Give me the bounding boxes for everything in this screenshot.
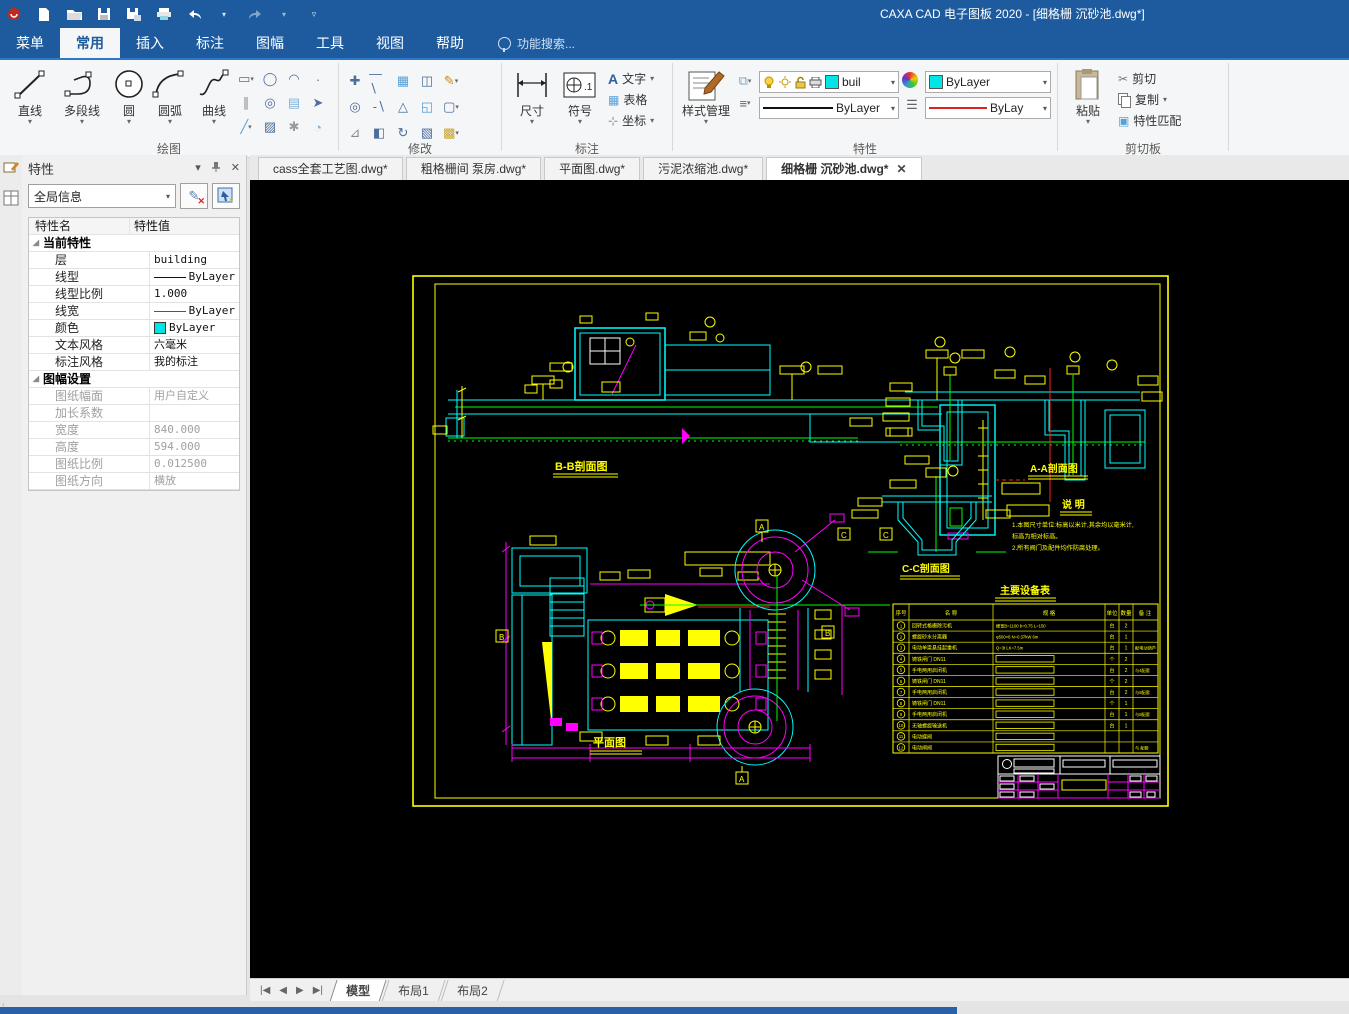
- linetype-combo[interactable]: ByLayer ▾: [759, 97, 899, 119]
- prop-row-图纸方向[interactable]: 图纸方向横放: [29, 473, 239, 490]
- prop-row-线型[interactable]: 线型ByLayer: [29, 269, 239, 286]
- hatch-line-icon[interactable]: ╱▾: [236, 116, 256, 138]
- sheet-palette-icon[interactable]: [3, 190, 19, 211]
- save-icon[interactable]: [96, 6, 112, 22]
- prop-row-标注风格[interactable]: 标注风格我的标注: [29, 354, 239, 371]
- svg-text:5: 5: [900, 668, 903, 673]
- symbol-icon: .1: [563, 66, 597, 104]
- app-logo-icon[interactable]: [6, 6, 22, 22]
- svg-text:B: B: [499, 633, 504, 642]
- current-color-swatch: [929, 75, 943, 89]
- layer-combo[interactable]: buil ▾: [759, 71, 899, 93]
- doc-tab-label: 污泥浓缩池.dwg*: [658, 158, 748, 180]
- panel-close-icon[interactable]: ✕: [231, 161, 240, 176]
- group-props: 样式管理▾ ⧉▾ ≡▾ buil ▾ ByLayer ▾ ☰: [673, 60, 1057, 159]
- equipment-table: 序号名 称规 格单位数量备 注1回转式格栅除污机栅宽B=1100 b=0.75 …: [893, 604, 1158, 753]
- svg-text:1: 1: [1125, 723, 1128, 729]
- title-block: [998, 756, 1160, 798]
- printer-icon: [809, 77, 822, 88]
- group-modify: ✚ ◎ ⊿ —∖ -∖ ◧ ▦ △ ↻ ◫ ◱ ▧ ✎▾ ▢▾ ▩▾ 修改: [339, 60, 501, 159]
- pie-icon[interactable]: ◔: [308, 116, 328, 138]
- svg-text:手电两用启闭机: 手电两用启闭机: [912, 667, 947, 674]
- svg-text:φ500×8 N=0.37kW 6m: φ500×8 N=0.37kW 6m: [996, 635, 1039, 640]
- svg-text:1: 1: [1125, 646, 1128, 652]
- svg-text:手电两用启闭机: 手电两用启闭机: [912, 689, 947, 696]
- svg-text:电动闸阀: 电动闸阀: [912, 744, 932, 751]
- quick-access-toolbar: ▾ ▾ ▿: [0, 6, 322, 22]
- svg-text:台: 台: [1109, 711, 1114, 718]
- tangent-arc-icon[interactable]: ◠: [284, 68, 304, 90]
- match-properties-button[interactable]: ▣特性匹配: [1118, 110, 1181, 131]
- svg-text:B: B: [825, 629, 830, 638]
- svg-text:台: 台: [1109, 645, 1114, 652]
- print-icon[interactable]: [156, 6, 172, 22]
- tab-model[interactable]: 模型: [329, 980, 386, 1002]
- doc-tab-0[interactable]: cass全套工艺图.dwg*: [258, 157, 403, 180]
- svg-text:.1: .1: [584, 82, 593, 93]
- save-all-icon[interactable]: [126, 6, 142, 22]
- point-icon[interactable]: ·: [308, 68, 328, 90]
- undo-icon[interactable]: [186, 6, 202, 22]
- svg-text:铸铁闸门 DN11: 铸铁闸门 DN11: [912, 678, 946, 685]
- doc-tab-1[interactable]: 粗格栅间 泵房.dwg*: [406, 157, 541, 180]
- doc-tab-3[interactable]: 污泥浓缩池.dwg*: [643, 157, 763, 180]
- last-layout-icon[interactable]: ▶|: [313, 985, 323, 996]
- menu-tab-2[interactable]: 插入: [120, 28, 180, 58]
- redo-caret-icon[interactable]: ▾: [276, 6, 292, 22]
- prop-row-颜色[interactable]: 颜色ByLayer: [29, 320, 239, 337]
- copy-button[interactable]: 复制▾: [1118, 89, 1181, 110]
- draw-small-icons: ▭▾ ∥ ╱▾ ◯ ◎ ▨ ◠ ▤ ✱ · ➤ ◔: [236, 68, 328, 140]
- bulb-icon: [763, 76, 776, 89]
- mirror-icon[interactable]: △: [393, 96, 413, 118]
- svg-text:2: 2: [1125, 690, 1128, 696]
- parallel-lines-icon[interactable]: ∥: [236, 92, 256, 114]
- document-tab-bar: cass全套工艺图.dwg*粗格栅间 泵房.dwg*平面图.dwg*污泥浓缩池.…: [250, 155, 1349, 181]
- linewidth-name: ByLay: [990, 101, 1023, 115]
- note-line-2: 2.所有阀门及配件均作防腐处理。: [1012, 544, 1104, 552]
- linewidth-combo[interactable]: ByLay ▾: [925, 97, 1051, 119]
- svg-text:台: 台: [1109, 722, 1114, 729]
- svg-text:栅宽B=1100 b=0.75 L=150: 栅宽B=1100 b=0.75 L=150: [996, 623, 1046, 630]
- modify-icons: ✚ ◎ ⊿ —∖ -∖ ◧ ▦ △ ↻ ◫ ◱ ▧ ✎▾ ▢▾ ▩▾: [345, 70, 461, 148]
- extend-icon[interactable]: -∖: [369, 96, 389, 118]
- svg-text:台: 台: [1109, 634, 1114, 641]
- prop-row-层[interactable]: 层building: [29, 252, 239, 269]
- svg-text:铸铁闸门 DN11: 铸铁闸门 DN11: [912, 656, 946, 663]
- svg-text:1: 1: [1125, 635, 1128, 641]
- tab-layout1[interactable]: 布局1: [381, 980, 445, 1002]
- svg-text:电动单梁悬挂起重机: 电动单梁悬挂起重机: [912, 645, 957, 652]
- svg-text:电动蝶阀: 电动蝶阀: [912, 733, 932, 740]
- cad-drawing: B-B剖面图: [250, 180, 1349, 978]
- style-manager-icon: [687, 66, 725, 104]
- group-annotate: 尺寸▾ .1 符号▾ A文字▾ ▦表格 ⊹坐标▾ 标注: [502, 60, 672, 159]
- svg-text:数量: 数量: [1120, 609, 1132, 617]
- panel-pin-icon[interactable]: [211, 161, 221, 176]
- svg-text:12: 12: [899, 745, 904, 750]
- edit-cancel-button[interactable]: ✎✕: [180, 183, 208, 209]
- color-wheel-icon[interactable]: [902, 72, 918, 88]
- linewidth-sample: [929, 107, 987, 109]
- section-aa: [883, 347, 1162, 502]
- sheet-inner-frame: [435, 284, 1160, 798]
- lock-icon: [795, 76, 806, 89]
- svg-text:与4配套: 与4配套: [1135, 667, 1151, 674]
- svg-text:A: A: [739, 775, 745, 784]
- search-icon: [498, 37, 511, 50]
- edit-pencil-icon[interactable]: ✎▾: [441, 70, 461, 92]
- section-cc: [852, 456, 1010, 555]
- svg-text:手电两用启闭机: 手电两用启闭机: [912, 711, 947, 718]
- doc-tab-close-icon[interactable]: ✕: [896, 158, 906, 180]
- menu-tab-7[interactable]: 帮助: [420, 28, 480, 58]
- label-aa: A-A剖面图: [1030, 462, 1078, 475]
- linewidth-tool-icon[interactable]: ☰: [902, 94, 922, 116]
- svg-text:7: 7: [900, 690, 903, 695]
- sun-icon: [779, 76, 792, 89]
- window-title: CAXA CAD 电子图板 2020 - [细格栅 沉砂池.dwg*]: [880, 0, 1145, 28]
- arc-icon: [152, 66, 188, 104]
- prop-row-线宽[interactable]: 线宽ByLayer: [29, 303, 239, 320]
- ribbon-tab-row: 菜单常用插入标注图幅工具视图帮助 功能搜索...: [0, 28, 1349, 58]
- label-plan: 平面图: [593, 736, 626, 749]
- circle-box-icon[interactable]: ◎: [260, 92, 280, 114]
- linetype-sample: [763, 107, 833, 109]
- equipment-table-title: 主要设备表: [1000, 584, 1051, 597]
- cut-button[interactable]: ✂剪切: [1118, 68, 1181, 89]
- svg-text:单位: 单位: [1106, 609, 1118, 617]
- svg-text:个: 个: [1109, 679, 1114, 685]
- flange-icon[interactable]: ▤: [284, 92, 304, 114]
- tab-layout2[interactable]: 布局2: [440, 980, 504, 1002]
- prop-row-宽度[interactable]: 宽度840.000: [29, 422, 239, 439]
- layer-name: buil: [842, 75, 861, 89]
- frame-icon[interactable]: ▢▾: [441, 96, 461, 118]
- svg-text:规 格: 规 格: [1043, 609, 1056, 617]
- arc-button[interactable]: 圆弧▾: [148, 64, 192, 126]
- svg-text:4: 4: [900, 657, 903, 662]
- prop-row-加长系数[interactable]: 加长系数: [29, 405, 239, 422]
- svg-text:1: 1: [1125, 701, 1128, 707]
- bottom-accent-bar: [0, 1007, 957, 1014]
- svg-text:配电动葫芦: 配电动葫芦: [1135, 645, 1156, 652]
- array-icon[interactable]: ▦: [393, 70, 413, 92]
- svg-text:2: 2: [1125, 679, 1128, 685]
- circle-button[interactable]: 圆▾: [110, 64, 148, 126]
- prop-group-1[interactable]: ◢图幅设置: [29, 371, 239, 388]
- ribbon: 直线▾ 多段线▾ 圆▾ 圆弧▾ 曲线▾ ▭▾ ∥ ╱▾ ◯ ◎ ▨ ◠ ▤ ✱: [0, 58, 1349, 158]
- properties-panel-title: 特性: [28, 159, 54, 178]
- doc-tab-label: 细格栅 沉砂池.dwg*: [781, 158, 888, 180]
- spline-button[interactable]: 曲线▾: [192, 64, 236, 126]
- global-info-select[interactable]: 全局信息▾: [28, 184, 176, 208]
- svg-text:8: 8: [900, 701, 903, 706]
- section-bb: [433, 313, 1049, 539]
- prop-row-图纸比例[interactable]: 图纸比例0.012500: [29, 456, 239, 473]
- new-file-icon[interactable]: [36, 6, 52, 22]
- svg-text:A: A: [759, 523, 765, 532]
- fill-icon[interactable]: ◱: [417, 96, 437, 118]
- svg-text:6: 6: [900, 679, 903, 684]
- svg-text:3: 3: [900, 646, 903, 651]
- svg-text:9: 9: [900, 712, 903, 717]
- svg-text:个: 个: [1109, 657, 1114, 663]
- label-cc: C-C剖面图: [902, 562, 950, 575]
- properties-table-header: 特性名 特性值: [29, 218, 239, 235]
- doc-tab-label: cass全套工艺图.dwg*: [273, 158, 388, 180]
- svg-text:回转式格栅除污机: 回转式格栅除污机: [912, 623, 952, 630]
- offset-icon[interactable]: ◎: [345, 96, 365, 118]
- svg-text:1: 1: [1125, 712, 1128, 718]
- dimension-button[interactable]: 尺寸▾: [508, 64, 556, 126]
- move-icon[interactable]: ✚: [345, 70, 365, 92]
- menu-tab-0[interactable]: 菜单: [0, 28, 60, 58]
- svg-text:Q=3t LK=7.5m: Q=3t LK=7.5m: [996, 646, 1024, 651]
- properties-table: 特性名 特性值 ◢当前特性层building线型ByLayer线型比例1.000…: [28, 217, 240, 491]
- arrow-icon[interactable]: ➤: [308, 92, 328, 114]
- menu-tab-4[interactable]: 图幅: [240, 28, 300, 58]
- linetype-tool-icon[interactable]: ≡▾: [735, 92, 755, 114]
- svg-text:C: C: [841, 531, 847, 540]
- doc-tab-4[interactable]: 细格栅 沉砂池.dwg*✕: [766, 157, 921, 180]
- panel-dropdown-icon[interactable]: ▾: [195, 161, 201, 176]
- label-bb: B-B剖面图: [555, 459, 608, 473]
- color-swatch: [154, 322, 166, 334]
- svg-text:台: 台: [1109, 667, 1114, 674]
- text-button[interactable]: A文字▾: [608, 68, 654, 89]
- svg-text:名 称: 名 称: [945, 609, 958, 617]
- svg-text:1: 1: [900, 623, 903, 628]
- rectangle-icon[interactable]: ▭▾: [236, 68, 256, 90]
- svg-text:台: 台: [1109, 623, 1114, 630]
- prop-row-文本风格[interactable]: 文本风格六毫米: [29, 337, 239, 354]
- prop-group-0[interactable]: ◢当前特性: [29, 235, 239, 252]
- svg-text:与6配套: 与6配套: [1135, 689, 1151, 696]
- redo-icon[interactable]: [246, 6, 262, 22]
- style-manager-button[interactable]: 样式管理▾: [679, 64, 733, 126]
- linetype-name: ByLayer: [836, 101, 880, 115]
- stretch-icon[interactable]: ◫: [417, 70, 437, 92]
- svg-text:与8配套: 与8配套: [1135, 711, 1151, 718]
- open-file-icon[interactable]: [66, 6, 82, 22]
- layer-color-swatch: [825, 75, 839, 89]
- gear-icon[interactable]: ✱: [284, 116, 304, 138]
- notes-title: 说 明: [1062, 498, 1085, 511]
- svg-text:螺旋砂水分离器: 螺旋砂水分离器: [912, 634, 947, 641]
- title-bar: ▾ ▾ ▿ CAXA CAD 电子图板 2020 - [细格栅 沉砂池.dwg*…: [0, 0, 1349, 28]
- doc-tab-label: 平面图.dwg*: [559, 158, 625, 180]
- color-combo[interactable]: ByLayer ▾: [925, 71, 1051, 93]
- layer-tool-icon[interactable]: ⧉▾: [735, 70, 755, 92]
- prop-row-图纸幅面[interactable]: 图纸幅面用户自定义: [29, 388, 239, 405]
- collapse-triangle-icon[interactable]: ◢: [29, 371, 43, 387]
- coordinate-button[interactable]: ⊹坐标▾: [608, 110, 654, 131]
- svg-text:10: 10: [899, 723, 904, 728]
- undo-caret-icon[interactable]: ▾: [216, 6, 232, 22]
- group-clipboard: 粘贴▾ ✂剪切 复制▾ ▣特性匹配 剪切板: [1058, 60, 1228, 159]
- svg-text:个: 个: [1109, 701, 1114, 707]
- layout-tab-bar: |◀ ◀ ▶ ▶| 模型 布局1 布局2: [250, 978, 1349, 1002]
- current-color-name: ByLayer: [946, 75, 990, 89]
- svg-text:C: C: [883, 531, 889, 540]
- svg-text:2: 2: [1125, 668, 1128, 674]
- ellipse-icon[interactable]: ◯: [260, 68, 280, 90]
- svg-text:2: 2: [1125, 657, 1128, 663]
- svg-text:台: 台: [1109, 689, 1114, 696]
- line-button[interactable]: 直线▾: [6, 64, 54, 126]
- line-icon: [13, 66, 47, 104]
- properties-palette-icon[interactable]: [3, 161, 19, 182]
- bottom-gray-bar: [957, 1007, 1349, 1014]
- group-draw: 直线▾ 多段线▾ 圆▾ 圆弧▾ 曲线▾ ▭▾ ∥ ╱▾ ◯ ◎ ▨ ◠ ▤ ✱: [0, 60, 338, 159]
- circle-icon: [112, 66, 146, 104]
- copy-icon: [1118, 93, 1131, 106]
- svg-text:11: 11: [899, 734, 904, 739]
- menu-tab-3[interactable]: 标注: [180, 28, 240, 58]
- note-line-0: 1.本图尺寸单位:标高以米计,其余均以毫米计,: [1012, 521, 1134, 529]
- properties-panel: 特性 ▾ ✕ 全局信息▾ ✎✕ 特性名 特性值 ◢当前特性层building线型…: [22, 155, 247, 995]
- doc-tab-label: 粗格栅间 泵房.dwg*: [421, 158, 526, 180]
- search-label: 功能搜索...: [517, 35, 575, 52]
- polyline-button[interactable]: 多段线▾: [54, 64, 110, 126]
- spline-icon: [196, 66, 232, 104]
- paste-button[interactable]: 粘贴▾: [1064, 64, 1112, 126]
- next-layout-icon[interactable]: ▶: [296, 985, 304, 996]
- hatch-region-icon[interactable]: ▨: [260, 116, 280, 138]
- notes-text: 1.本图尺寸单位:标高以米计,其余均以毫米计, 标高为相对标高。2.所有阀门及配…: [1012, 521, 1134, 552]
- svg-text:备 注: 备 注: [1139, 609, 1152, 617]
- layout-nav-buttons[interactable]: |◀ ◀ ▶ ▶|: [250, 985, 333, 996]
- note-line-1: 标高为相对标高。: [1012, 533, 1062, 541]
- collapse-triangle-icon[interactable]: ◢: [29, 235, 43, 251]
- svg-text:2: 2: [900, 634, 903, 639]
- svg-text:2: 2: [1125, 624, 1128, 630]
- doc-tab-2[interactable]: 平面图.dwg*: [544, 157, 640, 180]
- qat-more-icon[interactable]: ▿: [306, 6, 322, 22]
- pick-object-button[interactable]: [212, 183, 240, 209]
- menu-tab-1[interactable]: 常用: [60, 28, 120, 58]
- menu-tab-5[interactable]: 工具: [300, 28, 360, 58]
- svg-text:铸铁闸门 DN11: 铸铁闸门 DN11: [912, 700, 946, 707]
- drawing-canvas[interactable]: B-B剖面图: [250, 180, 1349, 978]
- prop-row-高度[interactable]: 高度594.000: [29, 439, 239, 456]
- svg-text:序号: 序号: [895, 609, 907, 617]
- symbol-button[interactable]: .1 符号▾: [556, 64, 604, 126]
- table-button[interactable]: ▦表格: [608, 89, 654, 110]
- plan-view: AA BB CC: [496, 514, 892, 784]
- function-search[interactable]: 功能搜索...: [498, 35, 575, 52]
- polyline-icon: [64, 66, 100, 104]
- paste-icon: [1073, 66, 1103, 104]
- prop-row-线型比例[interactable]: 线型比例1.000: [29, 286, 239, 303]
- prev-layout-icon[interactable]: ◀: [279, 985, 287, 996]
- svg-text:与 配套: 与 配套: [1135, 744, 1150, 751]
- svg-text:无轴螺旋输送机: 无轴螺旋输送机: [912, 722, 947, 729]
- first-layout-icon[interactable]: |◀: [260, 985, 270, 996]
- side-icon-strip: [0, 155, 23, 1006]
- trim-icon[interactable]: —∖: [369, 70, 389, 92]
- dimension-icon: [514, 66, 550, 104]
- menu-tab-6[interactable]: 视图: [360, 28, 420, 58]
